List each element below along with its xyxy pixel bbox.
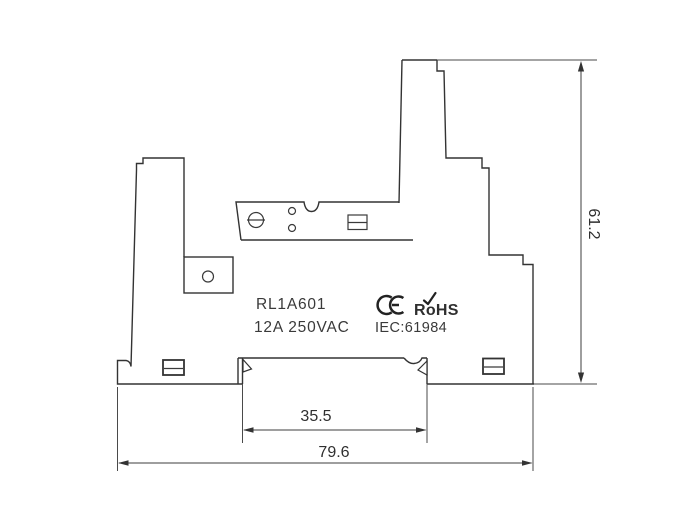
rail-slot-right [483, 359, 504, 375]
bottom-rail [163, 358, 534, 384]
mounting-tab [184, 257, 233, 293]
ledge-top-edge [236, 202, 399, 240]
height-dim-value: 61.2 [585, 208, 602, 239]
overall-arrow-right-icon [522, 460, 533, 466]
rohs-mark: RoHS [414, 293, 459, 319]
mounting-tab-box [184, 257, 233, 293]
pilot-hole-bottom [289, 225, 296, 232]
recess-top-notch [404, 358, 427, 364]
rohs-label: RoHS [414, 302, 459, 319]
dimension-overall-height: 61.2 [437, 60, 602, 384]
mounting-tab-hole [203, 271, 214, 282]
ce-mark-icon [378, 296, 404, 314]
height-arrow-down-icon [578, 373, 584, 384]
terminal-ledge [236, 202, 413, 240]
product-markings: RL1A601 12A 250VAC RoHS IEC:61984 [254, 293, 459, 336]
height-arrow-up-icon [578, 61, 584, 72]
rail-slot-left [163, 360, 184, 375]
standard-label: IEC:61984 [375, 320, 447, 336]
right-stepped-profile [437, 60, 533, 384]
inner-arrow-right-icon [416, 427, 427, 433]
dimension-inner-width: 35.5 [243, 384, 428, 443]
technical-drawing-relay-socket: 61.2 35.5 79.6 RL1A601 12A 250VAC RoHS [0, 0, 686, 515]
recess-right-hook [418, 361, 427, 375]
inner-dim-value: 35.5 [300, 408, 331, 425]
right-tower-left-edge [399, 60, 402, 203]
din-rail-recess [238, 358, 427, 384]
left-tower-outline [118, 158, 243, 384]
pilot-hole-top [289, 208, 296, 215]
left-tower-profile-path [118, 158, 243, 384]
dimension-overall-width: 79.6 [118, 387, 534, 471]
overall-dim-value: 79.6 [318, 444, 349, 461]
recess-left-hook [243, 360, 252, 373]
inner-arrow-left-icon [243, 427, 254, 433]
rating-label: 12A 250VAC [254, 319, 350, 336]
part-number-label: RL1A601 [256, 296, 326, 313]
overall-arrow-left-icon [118, 460, 129, 466]
